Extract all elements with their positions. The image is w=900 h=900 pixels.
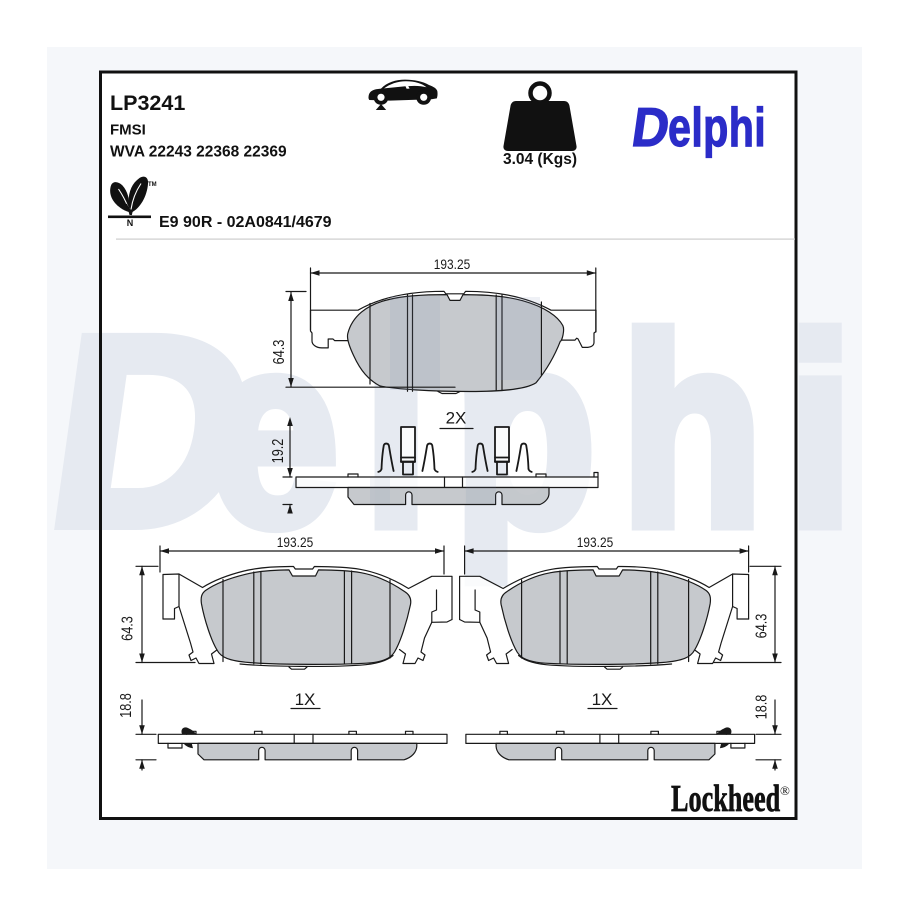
svg-text:193.25: 193.25: [577, 534, 613, 550]
svg-text:elphi: elphi: [668, 97, 766, 158]
svg-text:1X: 1X: [592, 690, 613, 709]
svg-text:®: ®: [780, 783, 790, 798]
svg-text:193.25: 193.25: [277, 534, 313, 550]
svg-text:3.04 (Kgs): 3.04 (Kgs): [503, 151, 577, 168]
svg-text:64.3: 64.3: [119, 616, 136, 641]
svg-text:N: N: [127, 218, 134, 228]
svg-text:1X: 1X: [295, 690, 316, 709]
svg-text:E9 90R - 02A0841/4679: E9 90R - 02A0841/4679: [159, 214, 332, 231]
svg-text:18.8: 18.8: [118, 693, 135, 718]
svg-text:19.2: 19.2: [270, 439, 287, 464]
svg-text:WVA 22243 22368 22369: WVA 22243 22368 22369: [110, 144, 287, 161]
svg-text:18.8: 18.8: [753, 695, 770, 720]
svg-text:64.3: 64.3: [753, 614, 770, 639]
svg-text:2X: 2X: [446, 409, 467, 428]
svg-text:193.25: 193.25: [434, 256, 470, 272]
svg-text:64.3: 64.3: [271, 340, 288, 365]
svg-text:FMSI: FMSI: [110, 122, 146, 139]
svg-text:LP3241: LP3241: [110, 91, 185, 115]
svg-text:Lockheed: Lockheed: [671, 778, 780, 820]
svg-text:TM: TM: [148, 182, 157, 188]
